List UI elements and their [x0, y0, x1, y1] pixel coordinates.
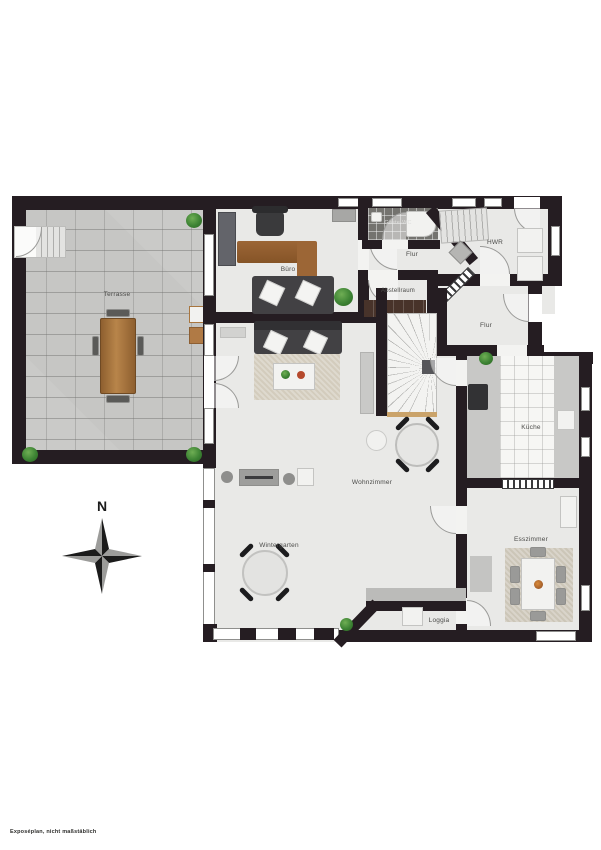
- dining-chair-right-2: [556, 588, 566, 605]
- wintergarten-glass-left: [203, 468, 215, 626]
- compass-rose: N: [55, 494, 149, 598]
- kitchen-counter-left: [467, 356, 500, 478]
- terrace-chair-right: [137, 336, 144, 356]
- storage-door-opening: [368, 270, 398, 280]
- kitchen-stove: [468, 384, 488, 410]
- room-label-wohnzimmer: Wohnzimmer: [337, 480, 407, 487]
- window-top-2: [372, 198, 402, 207]
- kitchen-tile-floor: [500, 356, 554, 478]
- room-label-esszimmer: Esszimmer: [496, 537, 566, 544]
- room-label-flur-unten: Flur: [466, 323, 506, 330]
- tv-speaker-right: [283, 473, 295, 485]
- dining-chair-left-1: [510, 566, 520, 583]
- office-plant: [334, 288, 353, 306]
- terrace-bush-top-right: [186, 213, 202, 228]
- window-living-left-1: [204, 324, 214, 356]
- window-dining-right: [581, 585, 590, 611]
- terrace-wall-top: [12, 196, 212, 210]
- room-label-flur-oben: Flur: [392, 252, 432, 259]
- terrace-bush-bottom-right: [186, 447, 202, 462]
- dining-chair-right-1: [556, 566, 566, 583]
- wall-stair-left: [376, 288, 387, 416]
- room-label-gaeste-wc: Gäste-WC: [370, 221, 426, 227]
- dryer: [517, 256, 543, 281]
- wintergarten-post-bottom-1: [240, 628, 256, 640]
- wintergarten-post-left-1: [203, 500, 215, 508]
- window-dining-bottom: [536, 631, 576, 641]
- stair-sideboard: [360, 352, 374, 414]
- hall-plant: [479, 352, 493, 365]
- terrace-chair-bottom: [106, 395, 130, 403]
- french-door-opening: [204, 356, 214, 408]
- loggia-bench-strip: [366, 588, 466, 601]
- office-chair-back: [252, 206, 288, 213]
- terrace-chair-top: [106, 309, 130, 317]
- window-kitchen-right-1: [581, 387, 590, 411]
- room-label-kueche: Küche: [506, 425, 556, 432]
- wall-stair-right: [437, 288, 447, 352]
- room-label-hwr: HWR: [475, 240, 515, 247]
- office-chair: [256, 210, 284, 236]
- window-top-3: [452, 198, 476, 207]
- coffee-table-food: [297, 371, 305, 379]
- living-sofa-back: [254, 321, 342, 330]
- wintergarten-table: [242, 550, 288, 596]
- wintergarten-post-left-2: [203, 564, 215, 572]
- compass-north-label: N: [97, 498, 107, 514]
- tv-speaker-left: [221, 471, 233, 483]
- room-label-buero: Büro: [268, 267, 308, 274]
- office-desk-return: [297, 241, 317, 281]
- tv-side-cabinet: [297, 468, 314, 486]
- terrace-table: [100, 318, 136, 394]
- room-label-abstellraum: Abstellraum: [363, 288, 433, 294]
- back-door-opening: [514, 197, 540, 208]
- office-desk: [237, 241, 303, 263]
- room-label-loggia: Loggia: [414, 618, 464, 625]
- office-shelf: [332, 209, 356, 222]
- window-living-left-2: [204, 408, 214, 444]
- window-office-left: [204, 234, 214, 296]
- window-bench: [220, 327, 246, 338]
- window-hwr-right: [551, 226, 560, 256]
- wintergarten-post-bottom-3: [314, 628, 334, 640]
- terrace-chair-left: [92, 336, 99, 356]
- hwr-shelf: [439, 207, 489, 243]
- hwr-door-opening: [480, 274, 510, 286]
- floor-plan: Terrasse Büro Gäste-WC HWR Flur Abstellr…: [0, 0, 601, 850]
- washing-machine: [517, 228, 543, 253]
- terrace-wall-bottom: [12, 450, 212, 464]
- dining-sideboard: [560, 496, 577, 528]
- dining-door-opening: [456, 506, 467, 534]
- dining-chair-top: [530, 547, 546, 557]
- loggia-plant: [340, 618, 353, 631]
- office-cabinet: [218, 212, 236, 266]
- kitchen-pass-through-window: [502, 479, 554, 489]
- tv-lowboard-line: [245, 476, 273, 479]
- dining-chair-left-2: [510, 588, 520, 605]
- coffee-table-greens: [281, 370, 290, 379]
- coffee-table: [273, 363, 315, 390]
- dining-mat: [470, 556, 492, 592]
- window-kitchen-right-2: [581, 437, 590, 457]
- front-door-opening: [529, 294, 542, 322]
- dining-chair-bottom: [530, 611, 546, 621]
- fruit-bowl: [534, 580, 543, 589]
- kitchen-appliance: [557, 410, 575, 430]
- kitchen-door-opening: [497, 345, 527, 356]
- side-table-round: [366, 430, 387, 451]
- room-label-wintergarten: Wintergarten: [244, 543, 314, 550]
- wintergarten-post-bottom-2: [278, 628, 296, 640]
- terrace-bush-bottom-left: [22, 447, 38, 462]
- window-top-4: [484, 198, 502, 207]
- guest-wc-door-opening: [382, 240, 408, 249]
- footer-disclaimer: Exposéplan, nicht maßstäblich: [10, 829, 97, 835]
- living-door-opening: [456, 360, 467, 386]
- room-label-terrasse: Terrasse: [87, 292, 147, 299]
